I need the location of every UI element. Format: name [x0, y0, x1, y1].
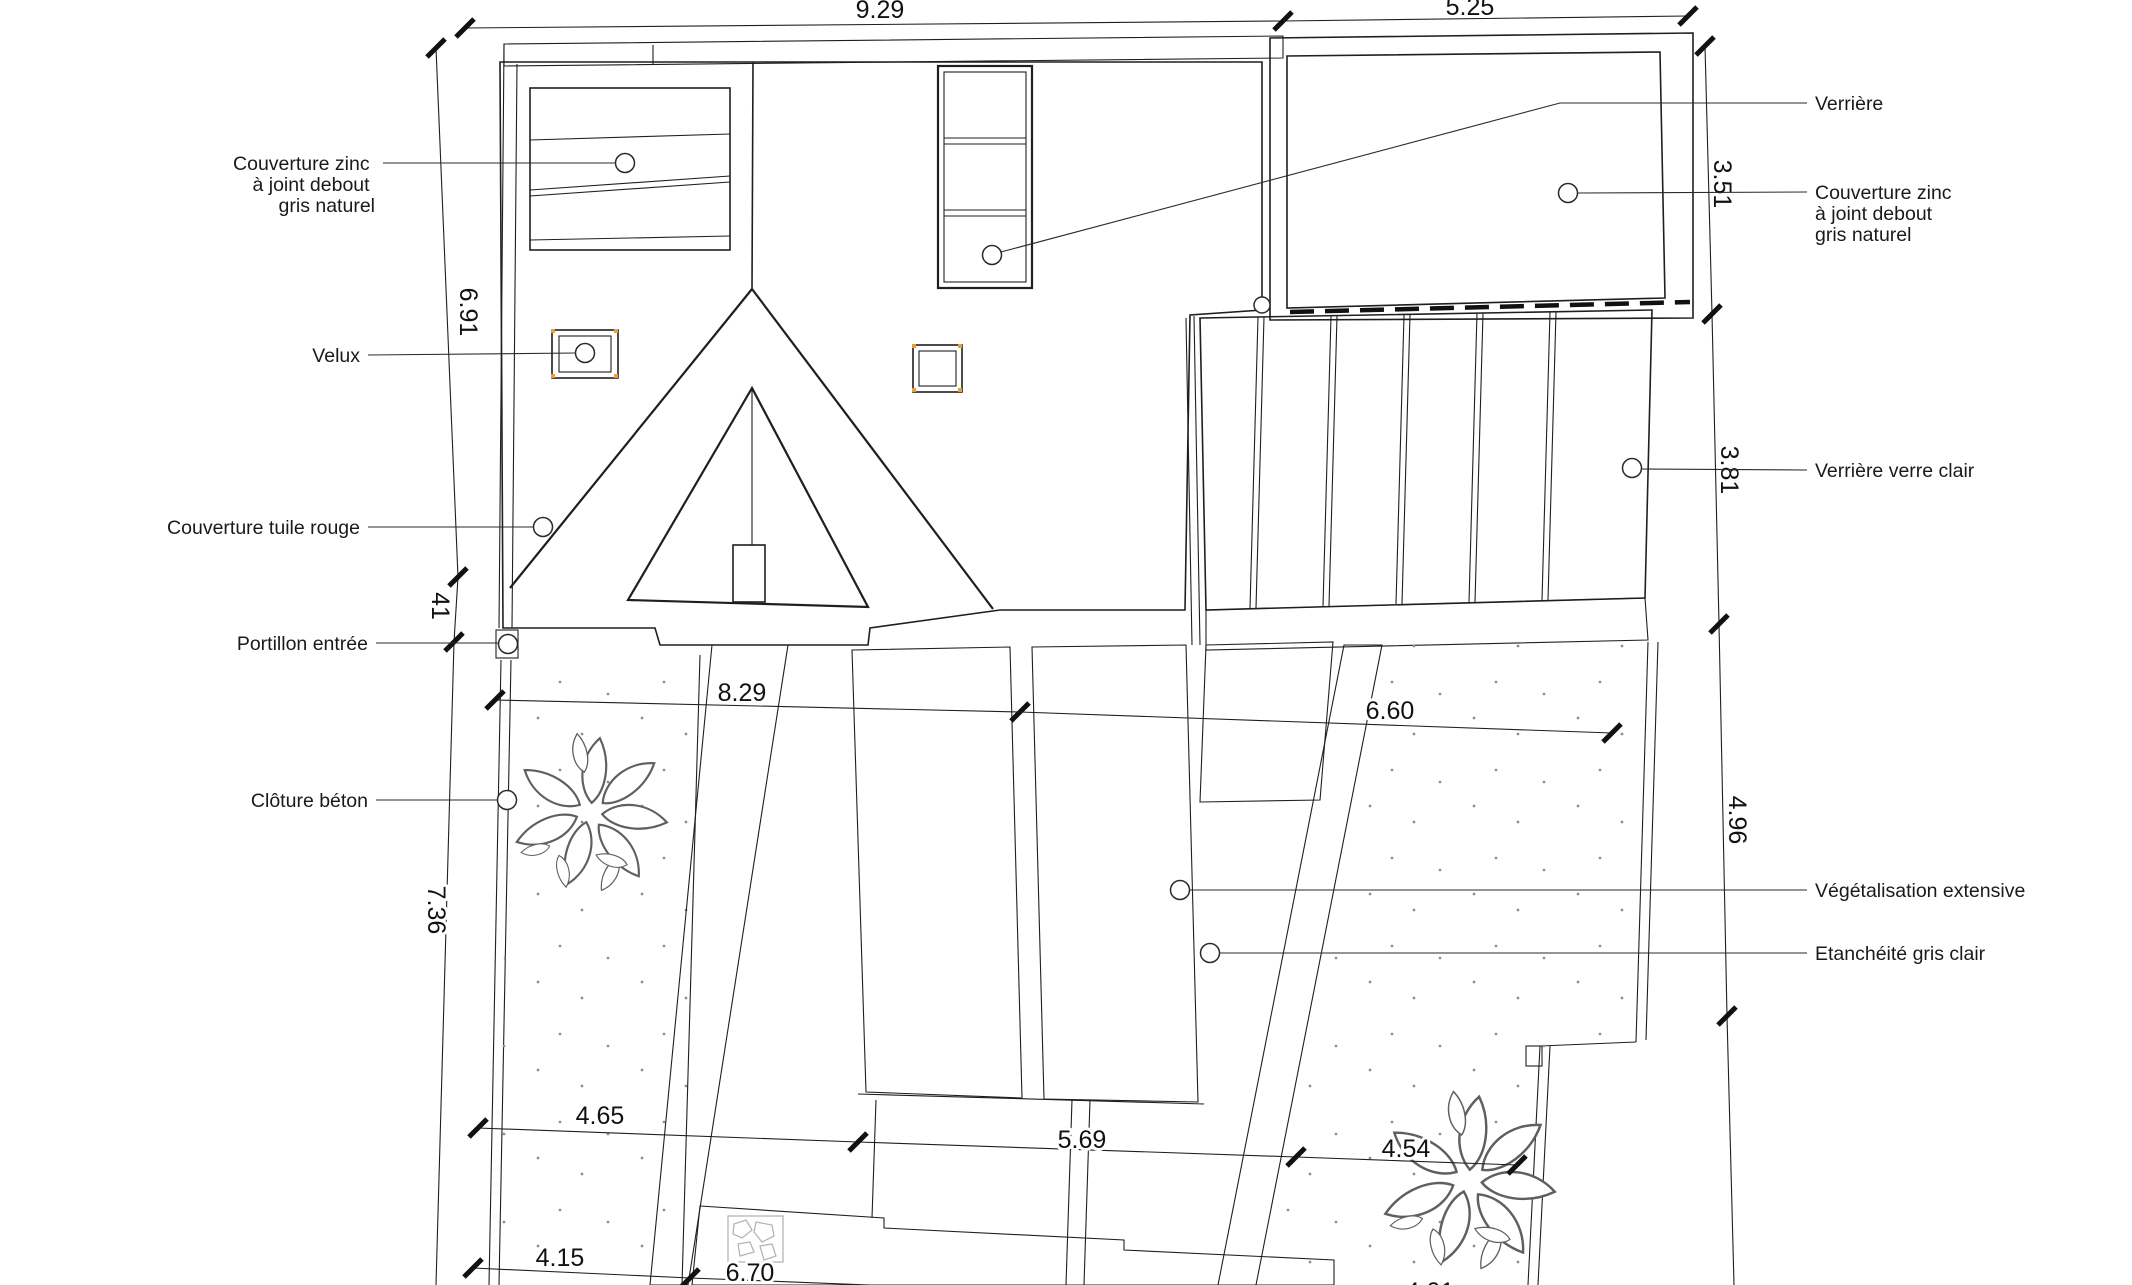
snap-marker	[912, 344, 916, 348]
dim-text: 4.65	[576, 1102, 625, 1130]
svg-text:Clôture béton: Clôture béton	[251, 790, 368, 812]
verriere-verre-clair	[1186, 310, 1652, 650]
label-line: Couverture tuile rouge	[167, 517, 360, 539]
dim-text: 6.60	[1366, 697, 1415, 725]
label-line: Couverture zinc	[1815, 182, 1952, 204]
label-couverture-zinc-right: Couverture zinc à joint debout gris natu…	[1559, 182, 1957, 246]
label-portillon-entree: Portillon entrée	[237, 633, 518, 655]
label-line: gris naturel	[279, 195, 375, 217]
snap-marker	[958, 388, 962, 392]
svg-text:Velux: Velux	[312, 345, 360, 367]
roof-plan-drawing: 9.29 5.25 3.51 3.81 4.96 6.91 41 7.36	[0, 0, 2132, 1285]
svg-text:Verrière verre clair: Verrière verre clair	[1815, 460, 1975, 482]
label-line: Verrière	[1815, 93, 1883, 115]
dim-text: 4.54	[1382, 1135, 1431, 1163]
label-line: à joint debout	[1815, 203, 1933, 225]
svg-text:Végétalisation extensive: Végétalisation extensive	[1815, 880, 2025, 902]
label-line: Végétalisation extensive	[1815, 880, 2025, 902]
snap-marker	[958, 344, 962, 348]
snap-marker	[912, 388, 916, 392]
dim-text: 4.96	[1723, 796, 1751, 845]
label-line: gris naturel	[1815, 224, 1911, 246]
dim-text: 41	[426, 592, 454, 620]
dim-text-partial: 4.01	[1406, 1278, 1455, 1285]
label-couverture-zinc-left: Couverture zinc à joint debout gris natu…	[233, 153, 634, 217]
dim-text: 6.91	[454, 288, 482, 337]
gable-dormer	[510, 289, 993, 609]
svg-text:Couverture zinc à join: Couverture zinc à joint debout gris natu…	[233, 153, 375, 217]
leader-circle	[616, 154, 635, 173]
leader-circle	[498, 791, 517, 810]
label-line: Portillon entrée	[237, 633, 368, 655]
label-line: Clôture béton	[251, 790, 368, 812]
label-line: Velux	[312, 345, 360, 367]
svg-text:Verrière: Verrière	[1815, 93, 1883, 115]
terrace-decking	[692, 1206, 1334, 1285]
leader-circle	[1201, 944, 1220, 963]
svg-text:Portillon entrée: Portillon entrée	[237, 633, 368, 655]
leader-circle	[1171, 881, 1190, 900]
label-line: à joint debout	[252, 174, 370, 196]
label-verriere: Verrière	[983, 93, 1884, 265]
dim-text: 6.70	[726, 1259, 775, 1285]
dim-text: 4.15	[536, 1244, 585, 1272]
inner-gable	[628, 388, 868, 607]
dimension-top-left: 9.29	[456, 0, 1292, 37]
dimension-top-right: 5.25	[1283, 0, 1697, 25]
label-line: Couverture zinc	[233, 153, 370, 175]
roof-plan-svg: 9.29 5.25 3.51 3.81 4.96 6.91 41 7.36	[0, 0, 2132, 1285]
dim-text: 3.51	[1708, 160, 1736, 209]
green-panel-a	[852, 647, 1022, 1098]
label-line: Etanchéité gris clair	[1815, 943, 1986, 965]
dim-text: 5.69	[1058, 1126, 1107, 1154]
ridge-line	[752, 62, 753, 289]
label-cloture-beton: Clôture béton	[251, 790, 517, 812]
leader-circle	[1623, 459, 1642, 478]
dimension-chain-right: 3.51 3.81 4.96	[1696, 37, 1751, 1285]
leader-circle	[576, 344, 595, 363]
leader-circle	[983, 246, 1002, 265]
dim-text: 8.29	[718, 679, 767, 707]
leader-circle	[1559, 184, 1578, 203]
snap-marker	[614, 374, 618, 378]
label-verriere-verre-clair: Verrière verre clair	[1623, 459, 1975, 483]
svg-text:Couverture zinc à join: Couverture zinc à joint debout gris natu…	[1815, 182, 1957, 246]
label-couverture-tuile-rouge: Couverture tuile rouge	[167, 517, 552, 539]
stone-paving-patch	[728, 1216, 783, 1262]
snap-marker	[551, 374, 555, 378]
dim-text: 9.29	[856, 0, 905, 24]
zinc-roof-top-right	[1254, 33, 1693, 320]
chimney	[733, 545, 765, 602]
glass-mullions	[1250, 312, 1556, 608]
lower-roof-lines	[858, 1094, 1204, 1285]
drain-circle	[1254, 297, 1270, 313]
leader-circle	[534, 518, 553, 537]
leader-circle	[499, 635, 518, 654]
snap-marker	[614, 329, 618, 333]
svg-text:Couverture tuile rouge: Couverture tuile rouge	[167, 517, 360, 539]
green-roof-panels	[852, 642, 1333, 1102]
dimension-chain-left: 6.91 41 7.36	[422, 39, 482, 1285]
dim-text: 5.25	[1446, 0, 1495, 21]
tile-roof-surface	[500, 62, 1262, 645]
garden-and-flat-roofs	[495, 640, 1644, 1285]
svg-text:Etanchéité gris clair: Etanchéité gris clair	[1815, 943, 1986, 965]
label-line: Verrière verre clair	[1815, 460, 1975, 482]
velux-right	[912, 344, 962, 392]
snap-marker	[551, 329, 555, 333]
dim-text: 7.36	[422, 886, 450, 935]
